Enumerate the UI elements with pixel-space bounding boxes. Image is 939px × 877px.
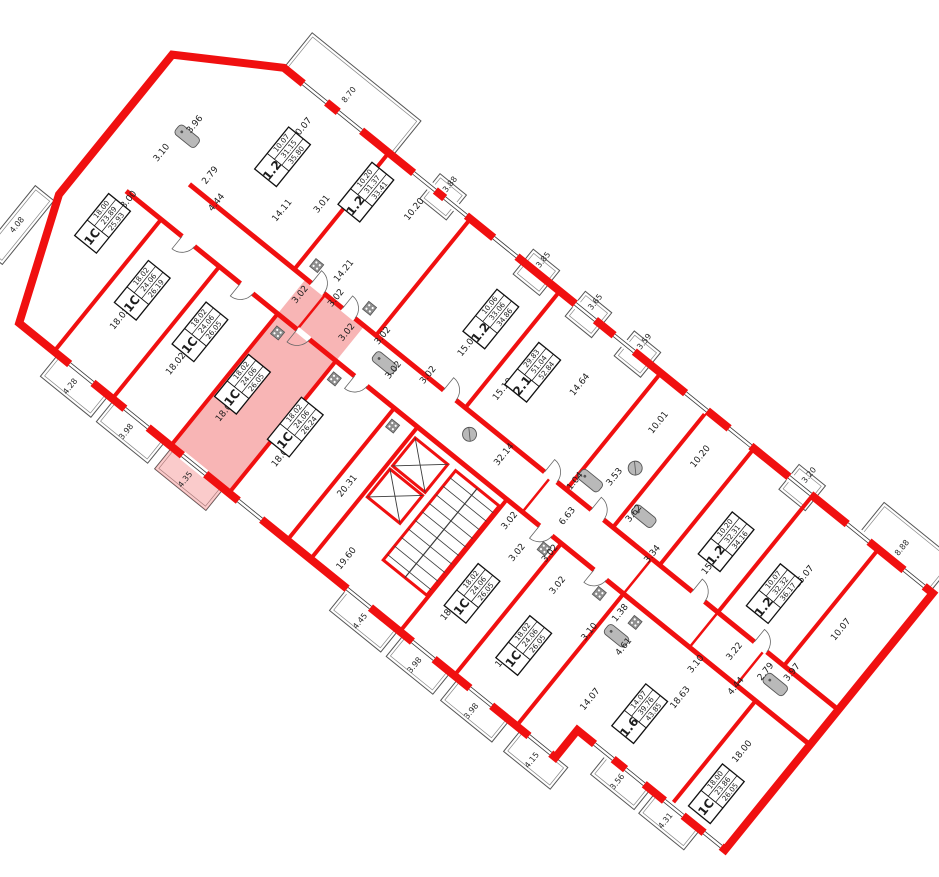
window [491,234,520,260]
stove-icon [592,586,606,600]
stove-icon [628,615,642,629]
unit-wall [784,549,878,666]
corridor-area-label: 32.14 [492,441,516,468]
room-area-label: 10.01 [647,410,671,436]
room-area-label: 14.21 [332,258,356,284]
room-area-label: 3.02 [500,510,520,532]
room-area-label: 3.10 [152,142,173,164]
room-area-label: 2.79 [200,165,221,187]
partition-wall [690,612,718,647]
corridor-area-label: 19.60 [335,545,359,572]
room-area-label: 10.20 [689,444,713,471]
room-area-label: 3.02 [326,287,346,309]
room-area-label: 3.53 [605,466,625,488]
room-area-label: 14.07 [579,686,603,712]
room-area-label: 18.00 [731,739,755,766]
window [701,829,724,850]
room-area-label: 3.02 [373,325,393,347]
room-area-label: 3.02 [548,575,568,597]
apartment-stat-box[interactable]: 1.614.0739.7643.85 [611,684,667,744]
room-area-label: 14.11 [271,198,295,224]
unit-wall [376,219,470,336]
corridor-area-label: 6.63 [558,506,578,528]
stove-icon [363,301,377,315]
window [683,390,710,415]
partition-wall [522,477,550,512]
room-area-label: 3.22 [725,641,745,663]
apartment-stat-box[interactable]: 1.210.2031.3733.41 [337,162,393,222]
apartment-stat-box[interactable]: 1.210.0732.3236.17 [746,564,802,624]
stove-icon [386,419,400,433]
floor-plan-page: 10.0714.113.012.793.103.964.4410.2014.21… [0,0,939,877]
window [235,497,264,523]
room-area-label: 3.02 [507,542,527,564]
stove-icon [327,372,341,386]
room-area-label: 3.96 [185,114,206,136]
room-area-label: 3.01 [312,194,332,216]
room-area-label: 14.64 [568,372,592,399]
room-area-label: 10.20 [403,196,427,223]
room-area-label: 10.07 [829,617,853,643]
unit-wall [517,594,624,726]
window [726,425,753,450]
unit-wall [555,730,577,757]
floor-plan-svg: 10.0714.113.012.793.103.964.4410.2014.21… [0,0,939,877]
room-area-label: 18.63 [669,685,693,711]
